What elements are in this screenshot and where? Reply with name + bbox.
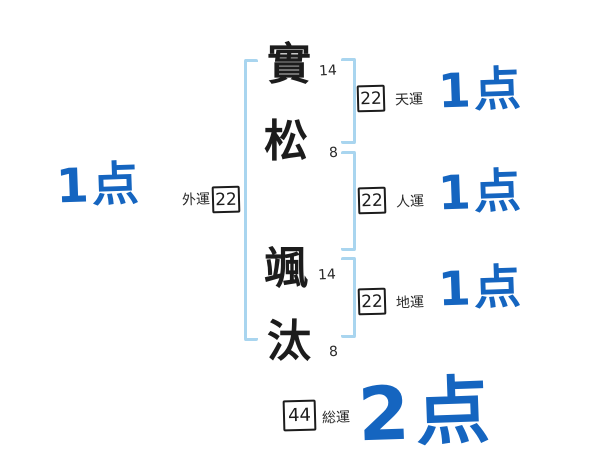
chiun-value-box: 22 (358, 288, 387, 316)
souun-value-box: 44 (283, 400, 317, 432)
name-char-4-strokes: 8 (329, 345, 339, 359)
gaiun-value-box: 22 (212, 186, 241, 214)
tenun-value-box: 22 (357, 85, 386, 113)
jinun-value-box: 22 (358, 187, 387, 215)
name-char-2: 松 (264, 120, 308, 164)
jinun-label: 人運 (396, 195, 424, 210)
gaiun-bracket (244, 59, 258, 341)
name-fortune-diagram: 1点 外運 22 實 14 松 8 颯 14 汰 8 22 天運 1点 22 人… (0, 0, 600, 470)
name-char-1: 實 (267, 43, 311, 87)
chiun-bracket (341, 257, 356, 338)
jinun-score: 1点 (437, 168, 524, 218)
gaiun-label: 外運 (182, 193, 210, 208)
name-char-2-strokes: 8 (329, 146, 339, 160)
chiun-label: 地運 (396, 296, 424, 311)
chiun-score: 1点 (437, 264, 524, 314)
souun-label: 総運 (322, 411, 350, 426)
tenun-bracket (341, 58, 356, 144)
name-char-4: 汰 (267, 320, 311, 364)
name-char-3-strokes: 14 (318, 268, 337, 283)
name-char-1-strokes: 14 (319, 64, 338, 79)
name-char-3: 颯 (264, 247, 308, 291)
tenun-label: 天運 (395, 93, 423, 108)
gaiun-score: 1点 (55, 161, 142, 211)
jinun-bracket (341, 151, 356, 251)
tenun-score: 1点 (437, 66, 524, 116)
souun-score: 2点 (357, 374, 497, 453)
